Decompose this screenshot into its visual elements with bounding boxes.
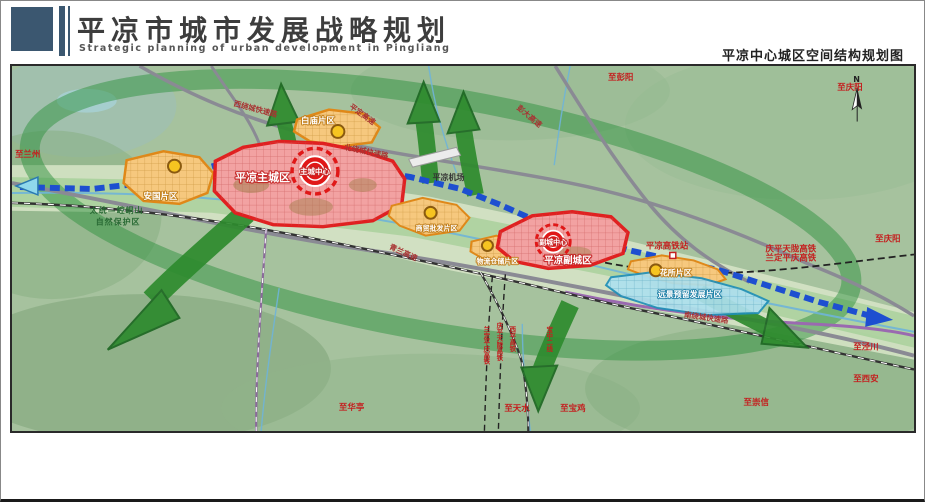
label-baimiao: 白庙片区 xyxy=(301,116,335,126)
label-hsr-qptl-vertical: 庆平天陇高铁 xyxy=(495,321,503,362)
label-to-qingyang-top: 至庆阳 xyxy=(837,82,862,92)
label-anguo: 安国片区 xyxy=(144,191,178,201)
label-hsr-ldpq-vertical: 兰定平庆高铁 xyxy=(482,325,490,366)
map-canvas: N 安国片区 白庙片区 平凉主城区 主城中心 商贸批发片区 物流仓储片区 平凉副… xyxy=(12,66,914,431)
planning-map: N 安国片区 白庙片区 平凉主城区 主城中心 商贸批发片区 物流仓储片区 平凉副… xyxy=(10,64,916,433)
label-to-lanzhou: 至兰州 xyxy=(15,149,40,159)
label-nature-reserve-2: 自然保护区 xyxy=(96,217,141,227)
label-hsr-station: 平凉高铁站 xyxy=(646,241,689,251)
label-to-xian: 至西安 xyxy=(853,373,879,383)
label-to-qingyang-right: 至庆阳 xyxy=(875,234,900,244)
header-square-logo xyxy=(11,7,53,51)
label-airport: 平凉机场 xyxy=(433,172,465,182)
header-bar-thin xyxy=(68,6,70,56)
map-caption: 平凉中心城区空间结构规划图 xyxy=(722,45,904,64)
page-title-english: Strategic planning of urban development … xyxy=(79,43,451,54)
label-reserved: 远景预留发展片区 xyxy=(658,289,722,299)
label-to-pengyang: 至彭阳 xyxy=(608,72,633,82)
label-to-chongxin: 至崇信 xyxy=(744,397,770,407)
header-bar xyxy=(59,6,65,56)
label-main-city: 平凉主城区 xyxy=(235,170,290,184)
document-page: 平凉市城市发展战略规划 Strategic planning of urban … xyxy=(0,0,925,502)
label-hsr-ldpq: 兰定平庆高铁 xyxy=(765,252,816,262)
hsr-station-marker xyxy=(670,252,676,258)
label-west-ring: 西绕城快速路 xyxy=(233,98,279,119)
label-baozhong-rail: 宝中二线 xyxy=(545,325,553,353)
label-sub-center: 副城中心 xyxy=(539,238,567,247)
label-to-tianshui: 至天水 xyxy=(504,403,530,413)
label-logistics: 物流仓储片区 xyxy=(476,256,518,265)
footer: “一环一带五廊、两城六片区”双核城市结构 平凉市委市政府 10 xyxy=(1,433,924,496)
label-trade: 商贸批发片区 xyxy=(416,224,458,233)
label-sub-city: 平凉副城区 xyxy=(544,254,592,266)
label-nature-reserve-1: 太统—崆峒山 xyxy=(90,205,144,215)
label-to-jingchuan: 至泾川 xyxy=(853,342,878,352)
label-to-huating: 至华亭 xyxy=(339,402,365,412)
label-huasuo: 花所片区 xyxy=(660,267,692,277)
label-xiping-rail: 西平高铁 xyxy=(508,326,516,353)
label-to-baoji: 至宝鸡 xyxy=(560,403,586,413)
label-main-center: 主城中心 xyxy=(300,166,330,176)
